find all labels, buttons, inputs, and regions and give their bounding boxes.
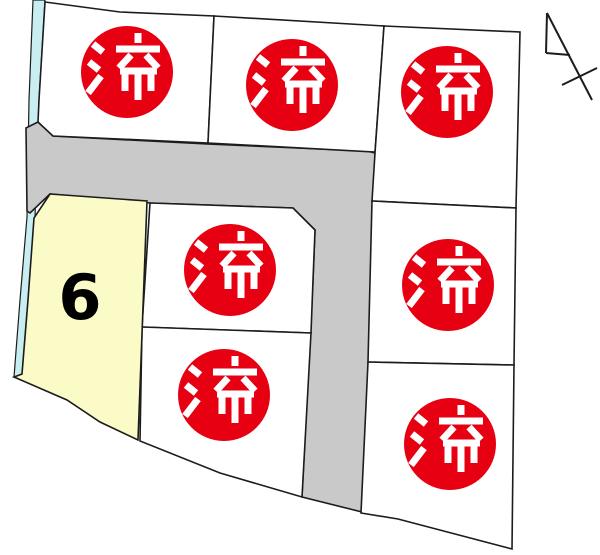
lot-number-label: 6 [58, 261, 101, 334]
sold-stamp [178, 349, 270, 441]
north-arrow-icon [546, 13, 597, 100]
sold-stamp [184, 224, 276, 316]
sold-stamp [401, 46, 493, 138]
sold-stamp [246, 39, 338, 131]
sold-stamp [404, 398, 496, 490]
sold-stamp [81, 26, 173, 118]
lot-map: 6 [0, 0, 600, 555]
sold-stamp [402, 239, 494, 331]
